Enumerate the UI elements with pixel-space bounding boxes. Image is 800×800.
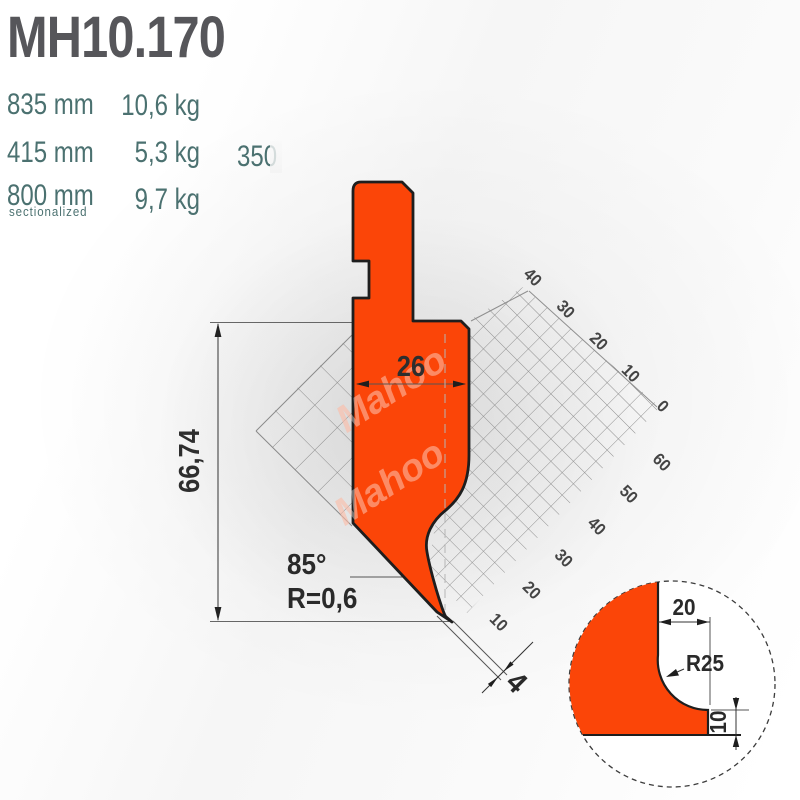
grid-label: 0: [653, 397, 672, 416]
detail-radius-label: R25: [686, 650, 724, 676]
grid-label: 30: [551, 546, 577, 572]
grid-label: 40: [520, 265, 546, 291]
detail-dim-bottom-label: 10: [705, 710, 731, 733]
spec-weight-3: 9,7 kg: [40, 185, 200, 215]
dim-angle-label: 85°: [287, 548, 326, 581]
grid-label: 50: [616, 482, 642, 508]
spec-weight-1: 10,6 kg: [40, 91, 200, 121]
grid-label: 40: [584, 514, 610, 540]
dim-radius-label: R=0,6: [287, 582, 357, 615]
dim-width-label: 26: [397, 349, 425, 382]
dim-tip-width: 4: [437, 616, 534, 700]
detail-dim-top-label: 20: [672, 594, 695, 620]
arrowhead-down-icon: [215, 607, 222, 621]
detail-view: 20 R25 10: [569, 581, 775, 787]
dim-height-label: 66,74: [172, 428, 205, 493]
spec-weight-2: 5,3 kg: [40, 138, 200, 168]
grid-label: 10: [486, 610, 512, 636]
grid-label: 20: [519, 578, 545, 604]
gradient-clip-strip: [270, 141, 282, 173]
arrowhead-up-icon: [215, 323, 222, 337]
grid-label: 60: [649, 450, 675, 476]
datasheet-page: 40 30 20 10 0 60 50 40 30 20 10 Mahoo Ma…: [0, 0, 800, 800]
page-title: MH10.170: [7, 9, 225, 67]
